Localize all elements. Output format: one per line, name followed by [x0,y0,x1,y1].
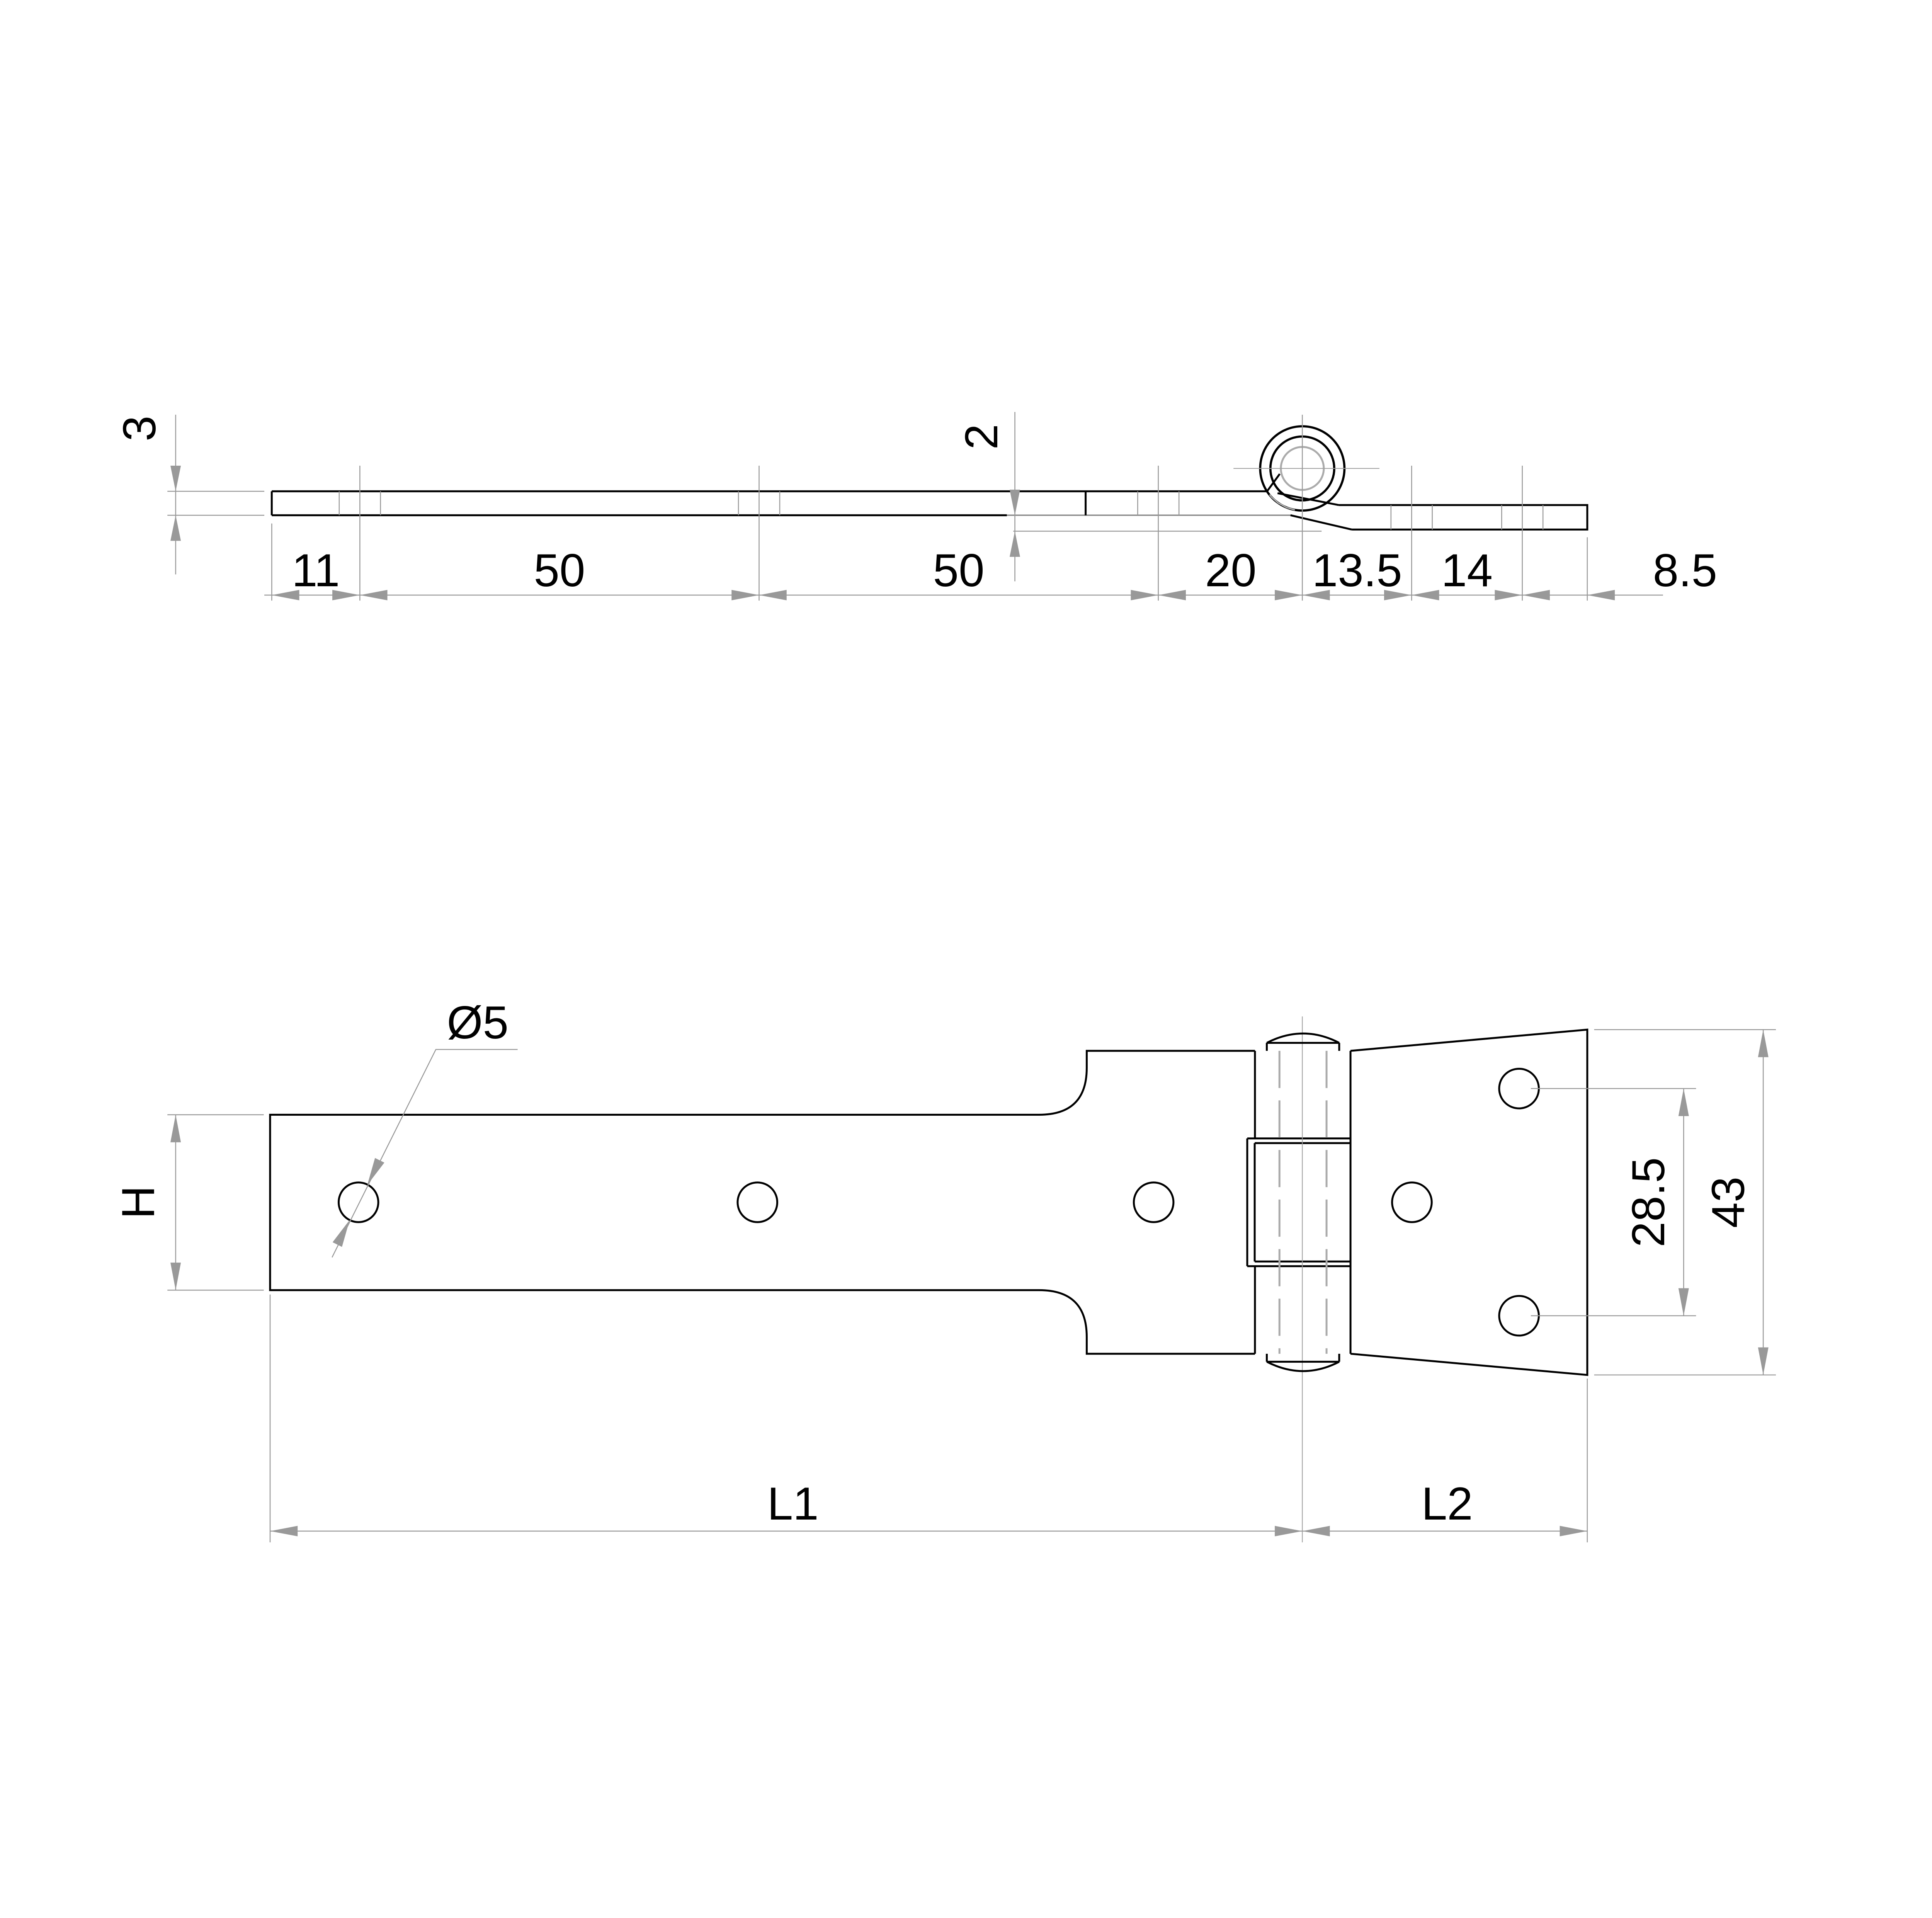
hole-leader-line [332,1050,517,1258]
arrow-left-icon [1587,590,1615,600]
chain-label-20: 20 [1205,545,1257,596]
top-plan-view: H Ø5 28.5 43 [113,997,1776,1542]
plan-right-plate-outline [1350,1030,1587,1375]
arrow-left-icon [1412,590,1439,600]
pin-cap-top-dome [1267,1033,1339,1043]
hinge-technical-drawing: 3 2 [0,0,1932,1918]
strap-hole-2 [738,1183,777,1222]
arrow-down-icon [1679,1288,1689,1316]
arrow-up-icon [1758,1030,1769,1057]
arrow-right-icon [1275,1526,1302,1536]
arrow-right-icon [1131,590,1158,600]
dim-plate-width: 43 [1594,1030,1776,1375]
arrow-up-icon [170,1115,181,1142]
pin-cap-bottom [1267,1354,1339,1362]
arrow-left-icon [360,590,387,600]
offset-label: 2 [956,424,1007,450]
chain-label-50b: 50 [933,545,985,596]
arrow-up-icon [1010,531,1020,557]
thickness-label: 3 [114,415,165,441]
arrow-down-icon [1758,1348,1769,1375]
arrow-right-icon [1495,590,1522,600]
arrow-left-icon [1522,590,1550,600]
arrow-leader-icon [333,1220,350,1247]
arrow-down-icon [170,1263,181,1290]
plan-left-leaf-outline [270,1051,1255,1354]
plan-knuckle [1247,1016,1350,1542]
bend-lower-edge [1291,515,1352,529]
hole-diameter-label: Ø5 [447,997,509,1048]
plan-holes [338,1069,1539,1335]
dim-offset: 2 [956,412,1321,581]
arrow-down-icon [170,466,181,491]
plate-hole-middle [1392,1183,1432,1222]
arrow-right-icon [731,590,759,600]
chain-label-11: 11 [292,545,340,596]
pin-cap-bottom-dome [1267,1362,1339,1371]
right-leaf-strip [1338,505,1587,529]
plate-length-label: L2 [1422,1478,1473,1530]
arrow-right-icon [1275,590,1302,600]
drawing-canvas: 3 2 [0,0,1932,1918]
pin-cap-top [1267,1043,1339,1051]
arrow-leader-icon [367,1158,384,1185]
chain-label-13-5: 13.5 [1312,545,1402,596]
strap-hole-1 [338,1183,378,1222]
side-profile-view: 3 2 [114,412,1717,601]
strap-hole-3 [1134,1183,1173,1222]
chain-label-14: 14 [1441,545,1493,596]
arrow-left-icon [1302,1526,1330,1536]
arrow-left-icon [1158,590,1186,600]
hole-spacing-label: 28.5 [1623,1157,1674,1247]
arrow-down-icon [1010,490,1020,515]
plate-width-label: 43 [1703,1176,1754,1228]
arrow-up-icon [170,515,181,541]
arrow-left-icon [759,590,787,600]
thickness-extension-lines [167,491,264,515]
middle-knuckle-outer-box [1247,1139,1350,1266]
width-label: H [113,1186,164,1219]
strap-length-label: L1 [767,1478,819,1530]
side-hole-marks [339,491,1543,529]
dim-hole-spacing: 28.5 [1531,1089,1696,1316]
side-strap-outline [272,474,1587,529]
dim-thickness: 3 [114,415,264,574]
arrow-right-icon [1560,1526,1587,1536]
dim-hole-diameter: Ø5 [332,997,517,1257]
width-extension-lines [167,1115,264,1290]
arrow-up-icon [1679,1089,1689,1116]
dim-lengths: L1 L2 [270,1295,1587,1542]
dim-strap-width: H [113,1115,264,1290]
chain-label-8-5: 8.5 [1653,545,1717,596]
chain-label-50a: 50 [534,545,585,596]
arrow-left-icon [270,1526,298,1536]
